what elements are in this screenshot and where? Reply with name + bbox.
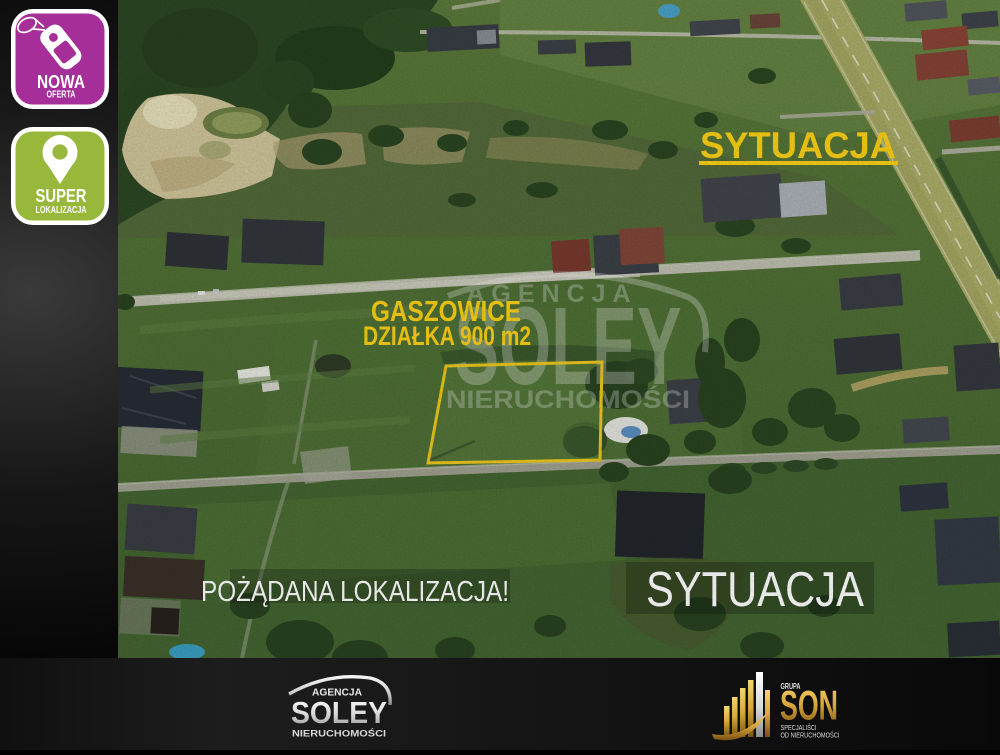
- svg-text:SON: SON: [780, 682, 838, 729]
- svg-text:NIERUCHOMOŚCI: NIERUCHOMOŚCI: [292, 728, 386, 740]
- svg-text:SOLEY: SOLEY: [291, 695, 387, 730]
- svg-text:OD NIERUCHOMOŚCI: OD NIERUCHOMOŚCI: [781, 731, 840, 740]
- svg-text:OFERTA: OFERTA: [47, 90, 76, 101]
- svg-text:SUPER: SUPER: [36, 186, 87, 206]
- svg-text:LOKALIZACJA: LOKALIZACJA: [36, 204, 87, 216]
